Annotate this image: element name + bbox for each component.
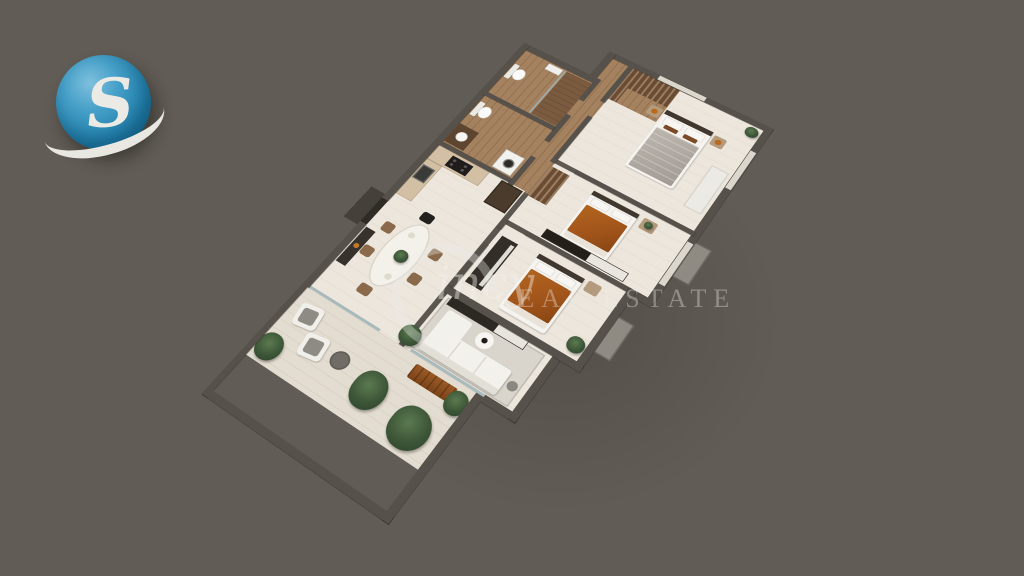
floorplan-scene [312,0,712,576]
logo-swoosh-icon [36,77,172,171]
screenshot-canvas: incy REAL ESTATE S [0,0,1024,576]
logo-sphere-icon: S [56,55,151,150]
floorplan-render [201,20,773,576]
brand-logo: S [56,55,151,150]
